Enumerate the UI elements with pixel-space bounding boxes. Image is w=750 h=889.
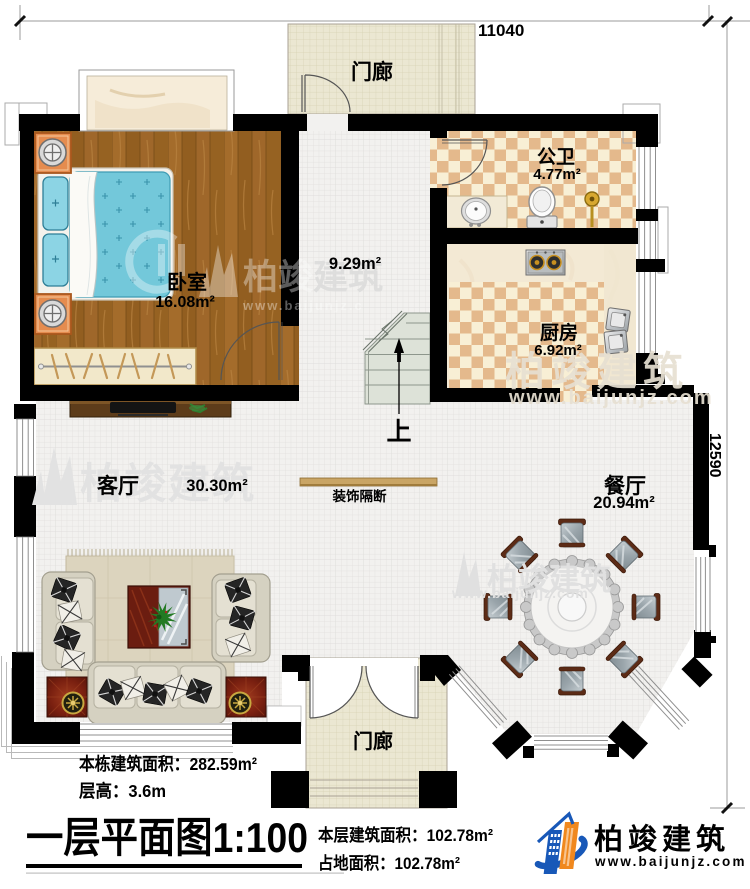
svg-text:11040: 11040 <box>478 21 524 40</box>
svg-text:16.08m²: 16.08m² <box>155 294 215 311</box>
svg-text:9.29m²: 9.29m² <box>329 255 382 273</box>
svg-text:本层建筑面积：102.78m²: 本层建筑面积：102.78m² <box>318 825 493 845</box>
svg-text:本栋建筑面积：282.59m²: 本栋建筑面积：282.59m² <box>79 754 257 774</box>
svg-text:6.92m²: 6.92m² <box>534 342 582 359</box>
svg-text:www.baijunjz.com: www.baijunjz.com <box>594 854 747 869</box>
svg-text:厨房: 厨房 <box>540 321 578 344</box>
svg-text:上: 上 <box>386 418 411 446</box>
svg-text:一层平面图1:100: 一层平面图1:100 <box>26 814 308 861</box>
svg-text:12590: 12590 <box>706 433 723 478</box>
svg-text:占地面积：102.78m²: 占地面积：102.78m² <box>318 853 460 873</box>
svg-text:柏竣: 柏竣 <box>243 257 313 297</box>
svg-text:装饰隔断: 装饰隔断 <box>332 488 387 504</box>
svg-text:门廊: 门廊 <box>351 60 393 84</box>
svg-text:层高：3.6m: 层高：3.6m <box>79 781 166 801</box>
svg-text:www.baijunjz.c: www.baijunjz.c <box>242 298 364 313</box>
svg-text:门廊: 门廊 <box>353 729 393 753</box>
svg-text:柏竣建筑: 柏竣建筑 <box>594 822 730 856</box>
svg-text:公卫: 公卫 <box>537 146 575 168</box>
svg-text:www.baijunjz.com: www.baijunjz.com <box>451 585 589 601</box>
svg-text:客厅: 客厅 <box>97 474 139 498</box>
svg-text:卧室: 卧室 <box>167 270 207 294</box>
svg-text:30.30m²: 30.30m² <box>186 477 248 495</box>
svg-text:4.77m²: 4.77m² <box>533 166 581 183</box>
svg-text:www.baijunjz.com: www.baijunjz.com <box>508 387 714 409</box>
svg-text:20.94m²: 20.94m² <box>593 494 655 512</box>
